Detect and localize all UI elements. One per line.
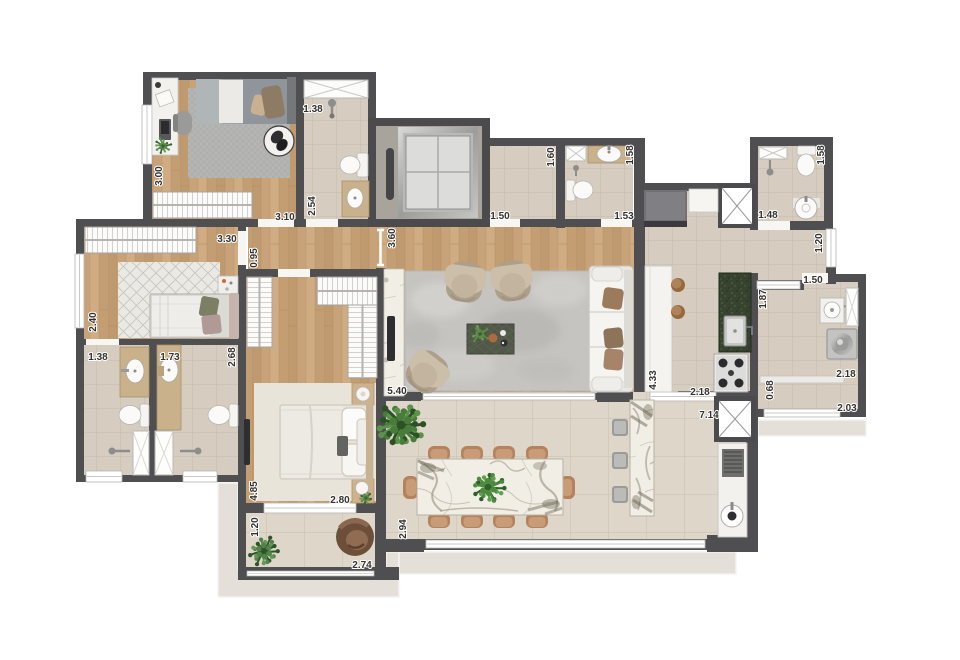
svg-text:2.18: 2.18 bbox=[690, 387, 710, 398]
svg-text:0.95: 0.95 bbox=[249, 248, 260, 268]
svg-text:3.10: 3.10 bbox=[275, 212, 295, 223]
svg-text:2.54: 2.54 bbox=[307, 196, 318, 216]
svg-text:1.20: 1.20 bbox=[250, 517, 261, 537]
svg-text:1.53: 1.53 bbox=[614, 211, 634, 222]
svg-text:2.18: 2.18 bbox=[836, 369, 856, 380]
svg-text:1.58: 1.58 bbox=[816, 145, 827, 165]
svg-text:1.87: 1.87 bbox=[758, 289, 769, 309]
svg-text:0.68: 0.68 bbox=[765, 380, 776, 400]
svg-text:1.38: 1.38 bbox=[303, 104, 323, 115]
svg-text:2.68: 2.68 bbox=[227, 347, 238, 367]
svg-text:3.60: 3.60 bbox=[387, 228, 398, 248]
svg-text:1.20: 1.20 bbox=[814, 233, 825, 253]
svg-text:2.80: 2.80 bbox=[330, 495, 350, 506]
svg-text:1.50: 1.50 bbox=[803, 275, 823, 286]
svg-text:3.00: 3.00 bbox=[154, 166, 165, 186]
svg-text:1.50: 1.50 bbox=[490, 211, 510, 222]
svg-text:2.94: 2.94 bbox=[398, 519, 409, 539]
svg-text:4.33: 4.33 bbox=[648, 370, 659, 390]
svg-text:4.85: 4.85 bbox=[249, 481, 260, 501]
svg-text:5.40: 5.40 bbox=[387, 386, 407, 397]
svg-text:1.58: 1.58 bbox=[625, 145, 636, 165]
svg-text:1.73: 1.73 bbox=[160, 352, 180, 363]
svg-text:1.48: 1.48 bbox=[758, 210, 778, 221]
svg-text:2.74: 2.74 bbox=[352, 560, 372, 571]
svg-text:2.40: 2.40 bbox=[88, 312, 99, 332]
svg-text:3.30: 3.30 bbox=[217, 234, 237, 245]
svg-text:2.03: 2.03 bbox=[837, 403, 857, 414]
svg-text:7.14: 7.14 bbox=[699, 410, 719, 421]
svg-text:1.38: 1.38 bbox=[88, 352, 108, 363]
svg-text:1.60: 1.60 bbox=[546, 147, 557, 167]
